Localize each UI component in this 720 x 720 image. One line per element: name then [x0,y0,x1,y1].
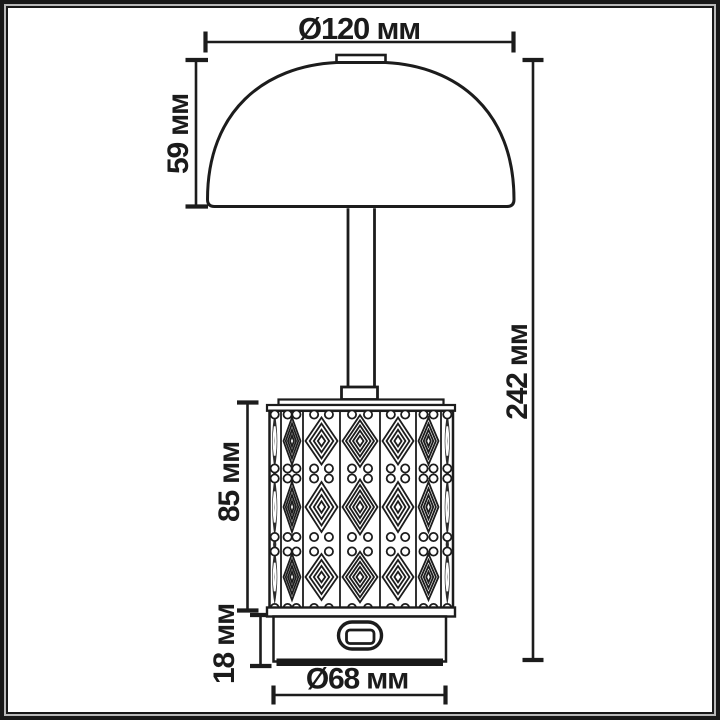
pattern-bead [348,464,356,472]
body-bottom-rim [267,608,455,617]
pattern-bead [348,474,356,482]
pattern-bead [284,474,292,482]
pattern-bead [443,533,451,541]
pattern-bead [348,410,356,418]
pattern-bead [310,410,318,418]
stem-collar [342,387,378,400]
pattern-bead [271,474,279,482]
pattern-bead [292,474,300,482]
pattern-bead [387,547,395,555]
pattern-bead [310,474,318,482]
pattern-bead [387,474,395,482]
dimension-drawing-svg: Ø120 мм 59 мм 85 мм 18 мм [0,0,720,720]
dim-label-body-height: 85 мм [213,442,246,522]
pattern-bead [284,410,292,418]
product-dimension-image: Ø120 мм 59 мм 85 мм 18 мм [0,0,720,720]
pattern-bead [292,547,300,555]
lamp-shade [208,63,515,207]
pattern-bead [401,474,409,482]
pattern-bead [271,547,279,555]
pattern-bead [419,474,427,482]
pattern-bead [401,547,409,555]
pattern-bead [348,533,356,541]
pattern-bead [292,410,300,418]
pattern-bead [310,464,318,472]
pattern-bead [364,547,372,555]
pattern-bead [401,410,409,418]
pattern-bead [364,533,372,541]
dim-base-height: 18 мм [208,604,272,684]
pattern-bead [364,410,372,418]
pattern-bead [419,410,427,418]
pattern-bead [429,533,437,541]
pattern-bead [284,464,292,472]
dim-shade-height: 59 мм [162,60,208,207]
pattern-bead [325,547,333,555]
pattern-bead [429,464,437,472]
pattern-bead [429,474,437,482]
dim-body-height: 85 мм [213,403,259,611]
pattern-bead [419,547,427,555]
pattern-bead [387,533,395,541]
pattern-bead [325,410,333,418]
power-button-inner [347,630,375,644]
pattern-bead [284,533,292,541]
pattern-bead [292,533,300,541]
dim-base-diameter: Ø68 мм [274,663,446,705]
dim-label-base-diameter: Ø68 мм [306,663,408,696]
dim-label-shade-height: 59 мм [162,94,195,174]
dim-label-shade-diameter: Ø120 мм [298,11,420,46]
pattern-bead [401,464,409,472]
pattern-bead [284,547,292,555]
dim-label-base-height: 18 мм [208,604,241,684]
pattern-bead [348,547,356,555]
pattern-bead [387,464,395,472]
pattern-bead [310,533,318,541]
pattern-bead [325,533,333,541]
pattern-bead [429,410,437,418]
pattern-bead [271,410,279,418]
pattern-bead [271,533,279,541]
pattern-bead [364,474,372,482]
pattern-bead [443,410,451,418]
pattern-bead [419,464,427,472]
pattern-bead [443,474,451,482]
pattern-bead [443,547,451,555]
dim-shade-diameter: Ø120 мм [206,11,514,53]
table-lamp-drawing [208,55,515,666]
pattern-bead [325,464,333,472]
lamp-stem [348,208,375,398]
pattern-bead [310,547,318,555]
pattern-bead [401,533,409,541]
pattern-bead [387,410,395,418]
pattern-bead [429,547,437,555]
dim-label-total-height: 242 мм [501,324,534,420]
pattern-bead [419,533,427,541]
pattern-bead [292,464,300,472]
pattern-bead [443,464,451,472]
pattern-bead [364,464,372,472]
base-bottom-edge [277,659,444,667]
pattern-bead [271,464,279,472]
pattern-bead [325,474,333,482]
